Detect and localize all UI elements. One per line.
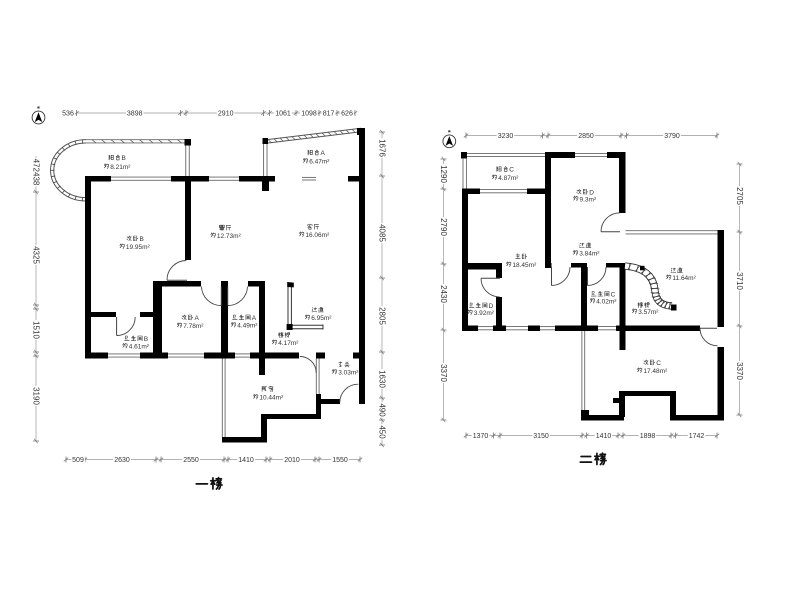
svg-text:3190: 3190 xyxy=(32,387,41,405)
svg-text:18.45m²: 18.45m² xyxy=(512,262,537,269)
svg-text:3710: 3710 xyxy=(735,272,744,290)
svg-text:4325: 4325 xyxy=(32,246,41,264)
svg-text:1898: 1898 xyxy=(640,433,656,440)
svg-text:817: 817 xyxy=(323,110,335,117)
svg-text:2630: 2630 xyxy=(114,457,130,464)
svg-text:17.48m²: 17.48m² xyxy=(643,368,668,375)
svg-text:3.57m²: 3.57m² xyxy=(638,309,659,316)
svg-text:490: 490 xyxy=(378,403,387,417)
svg-text:1510: 1510 xyxy=(32,321,41,339)
svg-text:3.03m²: 3.03m² xyxy=(338,370,359,377)
svg-text:1061: 1061 xyxy=(275,110,291,117)
svg-text:16.06m²: 16.06m² xyxy=(305,232,330,239)
svg-text:A: A xyxy=(195,315,200,322)
svg-text:6.47m²: 6.47m² xyxy=(309,159,330,166)
svg-text:4.02m²: 4.02m² xyxy=(596,299,617,306)
svg-text:C: C xyxy=(509,167,514,174)
svg-text:1290: 1290 xyxy=(439,165,448,183)
svg-text:B: B xyxy=(144,336,148,343)
svg-text:C: C xyxy=(656,360,661,367)
svg-text:4085: 4085 xyxy=(378,224,387,242)
svg-text:2010: 2010 xyxy=(284,457,300,464)
svg-text:19.95m²: 19.95m² xyxy=(126,244,151,251)
svg-text:9.3m²: 9.3m² xyxy=(580,196,597,203)
svg-text:4.49m²: 4.49m² xyxy=(237,323,258,330)
svg-text:3230: 3230 xyxy=(498,133,514,140)
svg-text:1098: 1098 xyxy=(301,110,317,117)
svg-text:4.17m²: 4.17m² xyxy=(278,340,299,347)
svg-text:6.95m²: 6.95m² xyxy=(311,315,332,322)
svg-text:472438: 472438 xyxy=(32,159,41,186)
svg-text:1410: 1410 xyxy=(238,457,254,464)
svg-text:3.84m²: 3.84m² xyxy=(579,251,600,258)
svg-text:B: B xyxy=(122,155,126,162)
svg-text:450: 450 xyxy=(378,425,387,439)
svg-text:2705: 2705 xyxy=(735,187,744,205)
svg-text:3790: 3790 xyxy=(664,133,680,140)
svg-text:2805: 2805 xyxy=(378,307,387,325)
svg-text:1410: 1410 xyxy=(596,433,612,440)
svg-text:626: 626 xyxy=(341,110,353,117)
svg-text:3370: 3370 xyxy=(735,362,744,380)
svg-text:C: C xyxy=(611,292,616,299)
svg-text:1676: 1676 xyxy=(378,139,387,157)
svg-text:536: 536 xyxy=(62,110,74,117)
svg-text:4.61m²: 4.61m² xyxy=(129,344,150,351)
svg-text:2910: 2910 xyxy=(218,110,234,117)
svg-text:D: D xyxy=(489,303,494,310)
svg-text:1742: 1742 xyxy=(689,433,705,440)
svg-text:1550: 1550 xyxy=(332,457,348,464)
svg-text:B: B xyxy=(140,236,144,243)
svg-text:509: 509 xyxy=(72,457,84,464)
svg-text:1630: 1630 xyxy=(378,370,387,388)
svg-text:12.73m²: 12.73m² xyxy=(217,233,242,240)
svg-text:3370: 3370 xyxy=(439,364,448,382)
svg-text:2850: 2850 xyxy=(578,133,594,140)
svg-text:2430: 2430 xyxy=(439,285,448,303)
svg-text:10.44m²: 10.44m² xyxy=(259,395,284,402)
svg-text:4.87m²: 4.87m² xyxy=(498,175,519,182)
svg-text:3898: 3898 xyxy=(127,110,143,117)
svg-text:A: A xyxy=(321,150,326,157)
svg-text:1370: 1370 xyxy=(473,433,489,440)
svg-text:11.64m²: 11.64m² xyxy=(672,275,696,282)
svg-text:7.78m²: 7.78m² xyxy=(183,323,204,330)
svg-text:3150: 3150 xyxy=(533,433,549,440)
svg-text:A: A xyxy=(252,315,257,322)
svg-text:3.92m²: 3.92m² xyxy=(474,310,495,317)
svg-text:8.21m²: 8.21m² xyxy=(110,164,131,171)
svg-text:D: D xyxy=(589,189,594,196)
svg-text:2790: 2790 xyxy=(439,218,448,236)
svg-text:2550: 2550 xyxy=(183,457,199,464)
